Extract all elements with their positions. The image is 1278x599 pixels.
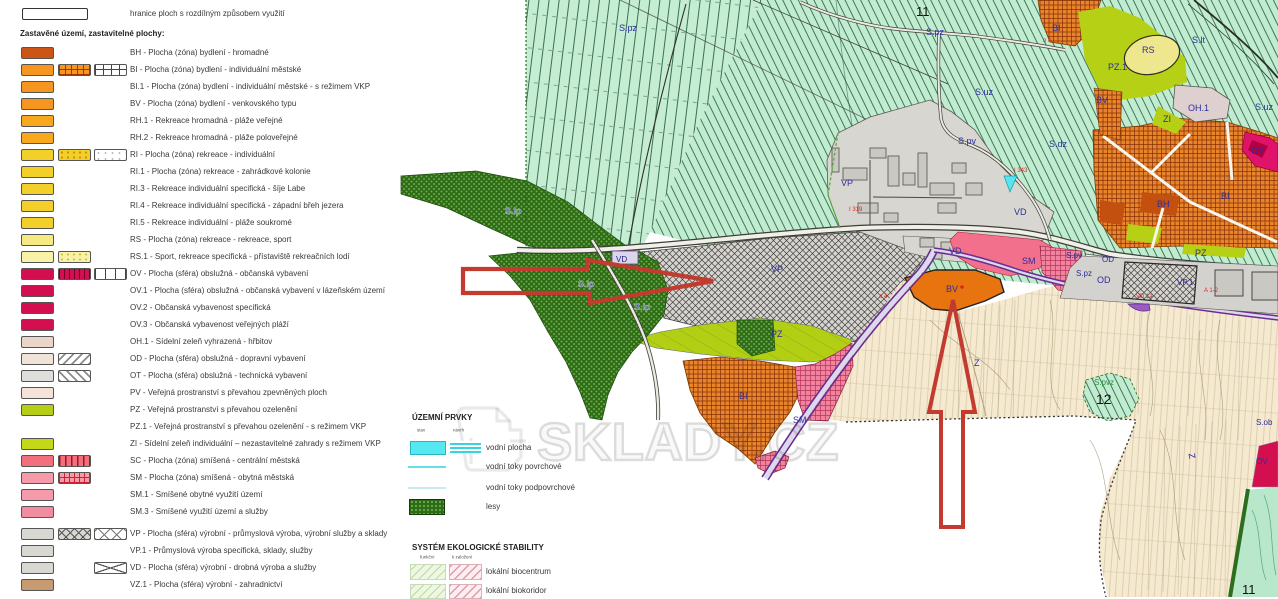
svg-text:11: 11 <box>1242 582 1256 597</box>
svg-text:PZ: PZ <box>1195 248 1207 258</box>
svg-text:BH: BH <box>1157 199 1170 209</box>
svg-text:VP: VP <box>771 264 783 274</box>
svg-text:BI: BI <box>1221 191 1230 201</box>
svg-text:S.uz: S.uz <box>975 87 994 97</box>
svg-text:VD: VD <box>949 246 962 256</box>
svg-text:BV: BV <box>946 284 958 294</box>
svg-text:OV: OV <box>1251 146 1264 156</box>
svg-text:S.ob: S.ob <box>1256 418 1273 427</box>
svg-text:OH.1: OH.1 <box>1188 103 1209 113</box>
svg-text:S.pvz: S.pvz <box>1094 378 1114 387</box>
svg-text:BI: BI <box>739 391 748 401</box>
svg-text:OD: OD <box>1102 255 1114 264</box>
svg-text:Z: Z <box>974 358 980 368</box>
svg-text:BV: BV <box>1096 95 1108 105</box>
svg-text:S.pv: S.pv <box>1066 251 1082 260</box>
svg-text:n n: n n <box>1043 38 1051 44</box>
svg-text:S.lp: S.lp <box>505 206 522 216</box>
svg-text:OD: OD <box>1097 275 1111 285</box>
svg-text:RS: RS <box>1142 45 1155 55</box>
svg-text:S.pz: S.pz <box>619 23 638 33</box>
svg-text:OV: OV <box>1256 457 1268 466</box>
svg-text:VD: VD <box>1014 207 1027 217</box>
svg-text:VD: VD <box>616 255 627 264</box>
svg-text:S.pz: S.pz <box>1076 269 1092 278</box>
svg-text:ZI: ZI <box>1163 114 1171 124</box>
svg-text:SM: SM <box>793 415 807 425</box>
svg-text:a 4: a 4 <box>879 294 888 300</box>
svg-text:PZ: PZ <box>771 329 783 339</box>
svg-text:S.lp: S.lp <box>578 279 595 289</box>
svg-text:VD.1a: VD.1a <box>1136 294 1153 300</box>
svg-text:I 319: I 319 <box>849 207 863 213</box>
svg-text:11: 11 <box>916 4 930 19</box>
svg-text:A 1-2: A 1-2 <box>1204 288 1219 294</box>
svg-text:S.uz: S.uz <box>1255 102 1274 112</box>
svg-text:S.lp: S.lp <box>634 302 651 312</box>
svg-text:SM: SM <box>1022 256 1036 266</box>
svg-text:BI: BI <box>1052 23 1061 33</box>
svg-text:I 343: I 343 <box>1014 168 1028 174</box>
svg-text:S.pv: S.pv <box>958 136 977 146</box>
svg-text:VP.1: VP.1 <box>1177 278 1194 287</box>
svg-text:VP: VP <box>841 178 853 188</box>
svg-text:S.dz: S.dz <box>1049 139 1068 149</box>
svg-text:S.lt: S.lt <box>1192 35 1206 45</box>
svg-text:S.pz: S.pz <box>926 27 945 37</box>
svg-text:PZ.1: PZ.1 <box>1108 62 1127 72</box>
svg-text:12: 12 <box>1096 391 1112 407</box>
